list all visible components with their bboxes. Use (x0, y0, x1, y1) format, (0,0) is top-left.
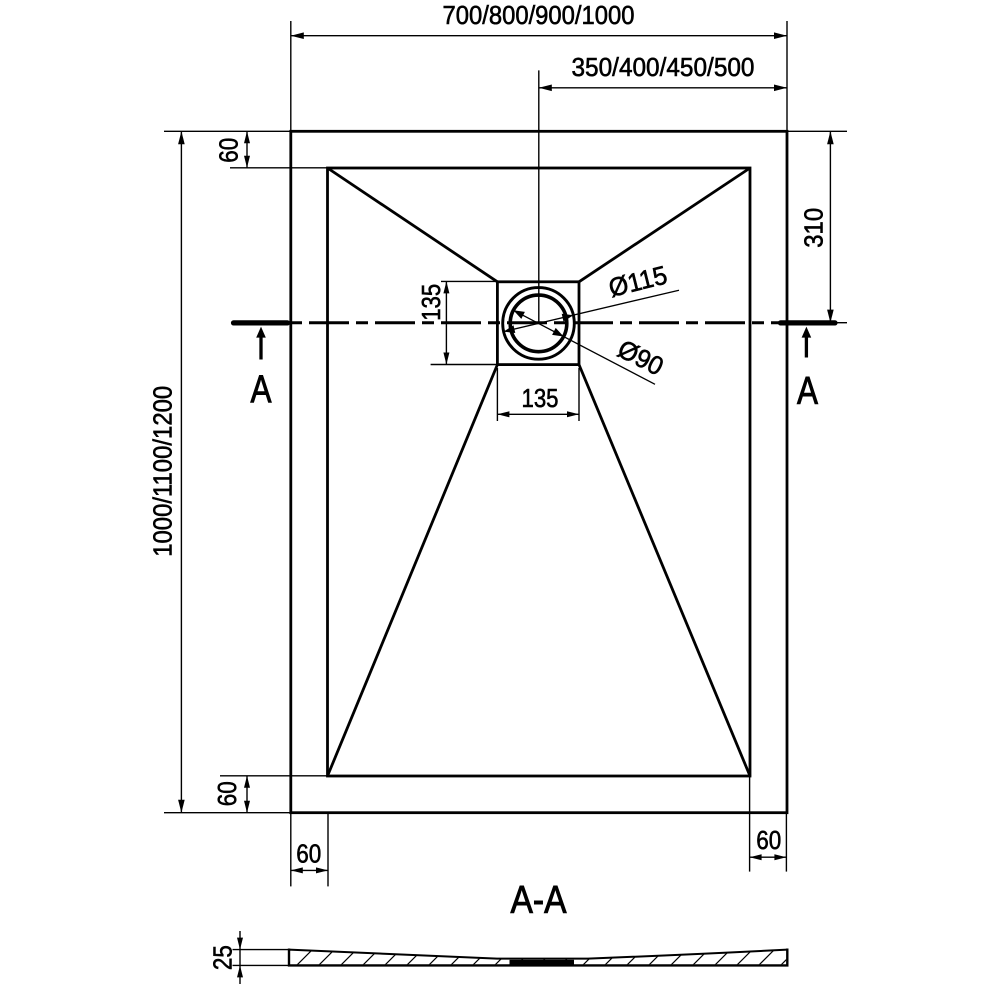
svg-text:60: 60 (756, 825, 781, 855)
svg-text:1000/1100/1200: 1000/1100/1200 (148, 386, 178, 557)
svg-text:A: A (251, 369, 272, 412)
svg-text:310: 310 (799, 208, 829, 248)
svg-text:25: 25 (208, 945, 238, 970)
svg-text:60: 60 (212, 781, 242, 806)
svg-text:135: 135 (522, 383, 559, 413)
svg-text:60: 60 (296, 839, 321, 869)
svg-text:A-A: A-A (511, 879, 567, 922)
svg-text:350/400/450/500: 350/400/450/500 (572, 52, 755, 82)
svg-text:135: 135 (416, 284, 446, 321)
svg-text:A: A (797, 370, 818, 413)
svg-text:700/800/900/1000: 700/800/900/1000 (443, 0, 635, 30)
svg-text:60: 60 (213, 138, 243, 163)
